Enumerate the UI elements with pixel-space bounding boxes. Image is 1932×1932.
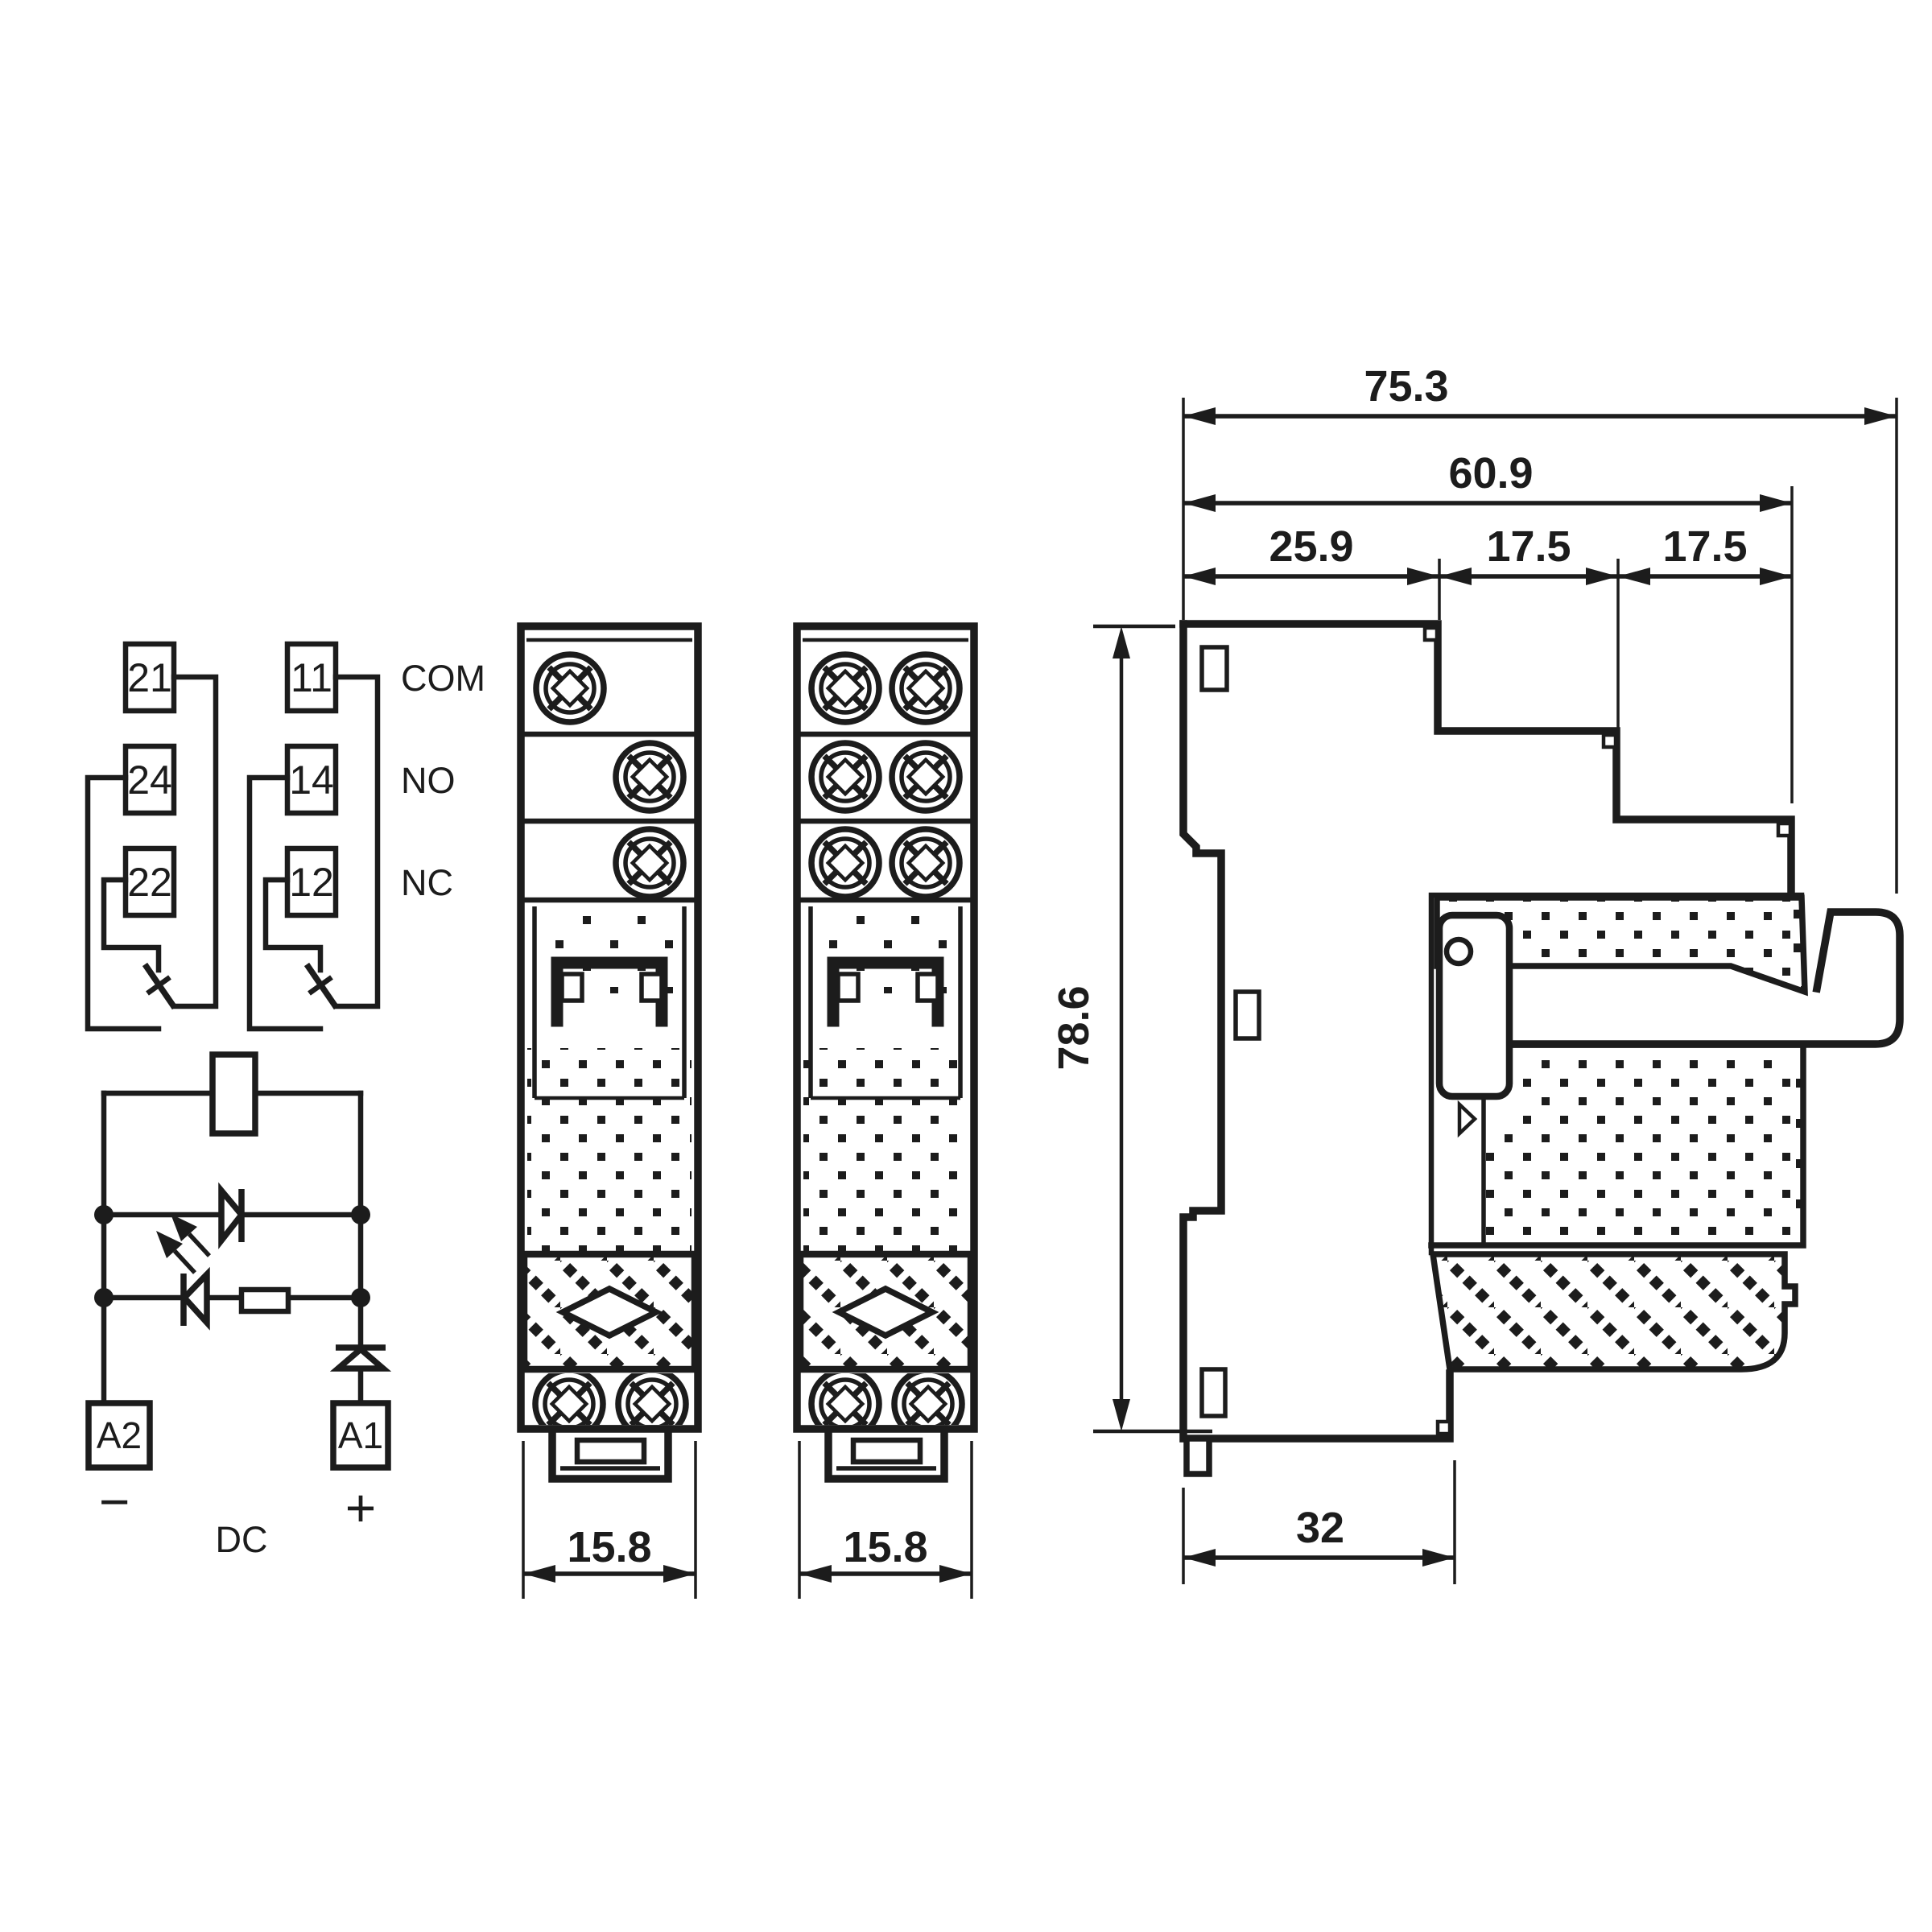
segment2-label: 17.5 (1486, 522, 1571, 571)
dimension-78-6: 78.6 (1050, 626, 1212, 1431)
arrowhead (1618, 568, 1650, 585)
arrowhead-left (1183, 1549, 1216, 1567)
reference-ticks (1093, 626, 1212, 1431)
clip-window (562, 974, 582, 1001)
clip-window (838, 974, 858, 1001)
comb-tooth (1796, 1159, 1805, 1168)
socket-bottom-hatch (1433, 1254, 1795, 1369)
housing-slot (1236, 992, 1259, 1038)
segment3-label: 17.5 (1662, 522, 1747, 571)
corner-notch (1778, 824, 1790, 836)
mounting-foot (828, 1429, 944, 1479)
relay-in-socket (1431, 898, 1900, 1369)
arrowhead-down (1113, 1399, 1130, 1431)
corner-notch (1425, 628, 1437, 640)
relay-body-texture (527, 1048, 691, 1251)
arrowhead-right (939, 1565, 972, 1583)
resistor-icon (242, 1290, 288, 1311)
orientation-triangle-marker (1459, 1104, 1475, 1133)
width-dim-label-1: 15.8 (567, 1523, 651, 1571)
clip-window (642, 974, 662, 1001)
terminal-14-label: 14 (289, 758, 334, 803)
upper-depth-label: 60.9 (1448, 449, 1533, 497)
row-label-com: COM (401, 658, 485, 699)
arrowhead (1586, 568, 1618, 585)
terminal-a2-label: A2 (97, 1414, 142, 1456)
contact-pole-1: 11 14 12 (250, 644, 378, 1029)
arrowhead-up (1113, 626, 1130, 658)
corner-notch (1604, 735, 1616, 747)
terminal-12-label: 12 (289, 860, 334, 905)
front-view-module-1: 15.8 (521, 626, 698, 1599)
relay-body-texture-left (1485, 1127, 1519, 1244)
relay-dimension-drawing: 21 24 22 11 14 12 COM NO NC (0, 0, 1932, 1932)
relay-dimension-drawing-page: 21 24 22 11 14 12 COM NO NC (0, 0, 1932, 1932)
positive-sign: + (345, 1478, 377, 1538)
width-dim-label-2: 15.8 (843, 1523, 927, 1571)
mounting-foot (552, 1429, 668, 1479)
height-label: 78.6 (1050, 985, 1098, 1070)
terminal-21-label: 21 (127, 655, 172, 700)
segment1-label: 25.9 (1269, 522, 1353, 571)
arrowhead-right (1760, 494, 1792, 512)
node-dot (351, 1205, 370, 1224)
arrowhead-left (799, 1565, 832, 1583)
terminal-22-label: 22 (127, 860, 172, 905)
arrowhead (1760, 568, 1792, 585)
wire-com-pole1 (336, 677, 378, 1006)
arrowhead (1439, 568, 1472, 585)
arrowhead (1183, 568, 1216, 585)
base-depth-label: 32 (1296, 1504, 1344, 1552)
relay-body-texture (803, 1048, 968, 1251)
arrowhead-left (1183, 494, 1216, 512)
comb-tooth (1796, 1119, 1805, 1128)
node-dot (94, 1205, 114, 1224)
supply-label-dc: DC (216, 1519, 268, 1560)
comb-tooth (1794, 910, 1802, 919)
node-dot (351, 1288, 370, 1307)
coil-circuit-diagram: A2 A1 − + DC (89, 1055, 388, 1560)
side-view: 75.3 60.9 25.9 17.5 17.5 (1050, 362, 1900, 1584)
terminal-11-label: 11 (291, 655, 332, 700)
arrowhead-left (1183, 407, 1216, 425)
arrowhead (1407, 568, 1439, 585)
housing-slot (1202, 647, 1227, 690)
negative-sign: − (99, 1472, 130, 1531)
led-icon (156, 1214, 209, 1326)
terminal-a1-label: A1 (338, 1414, 383, 1456)
front-view-module-2: 15.8 (797, 626, 974, 1599)
row-label-nc: NC (401, 862, 453, 903)
node-dot (94, 1288, 114, 1307)
comb-tooth (1796, 1079, 1805, 1088)
dimension-75-3: 75.3 (1183, 362, 1897, 894)
relay-body-texture (1519, 1052, 1802, 1244)
arrowhead-right (1422, 1549, 1455, 1567)
terminal-24-label: 24 (127, 758, 172, 803)
wire-com-pole2 (174, 677, 216, 1006)
stepped-top-profile (1183, 624, 1791, 894)
row-label-no: NO (401, 760, 456, 801)
coil-symbol (213, 1055, 255, 1133)
overall-depth-label: 75.3 (1364, 362, 1448, 411)
corner-notch (1438, 1422, 1450, 1434)
left-and-bottom-profile (1183, 624, 1450, 1439)
diode-icon (221, 1189, 242, 1242)
comb-tooth (1796, 1199, 1805, 1208)
contact-arrangement-diagram: 21 24 22 11 14 12 COM NO NC (88, 644, 485, 1029)
contact-pole-2: 21 24 22 (88, 644, 216, 1029)
dimension-segments: 25.9 17.5 17.5 (1183, 522, 1792, 815)
arrowhead-right (663, 1565, 696, 1583)
arrowhead-left (523, 1565, 555, 1583)
housing-slot (1202, 1369, 1225, 1416)
arrowhead-right (1864, 407, 1897, 425)
series-diode-icon (336, 1348, 386, 1368)
foot-tab (1187, 1439, 1209, 1474)
clip-window (918, 974, 938, 1001)
clip-hole (1447, 939, 1471, 964)
comb-tooth (1794, 943, 1802, 952)
dimension-32: 32 (1183, 1460, 1455, 1584)
